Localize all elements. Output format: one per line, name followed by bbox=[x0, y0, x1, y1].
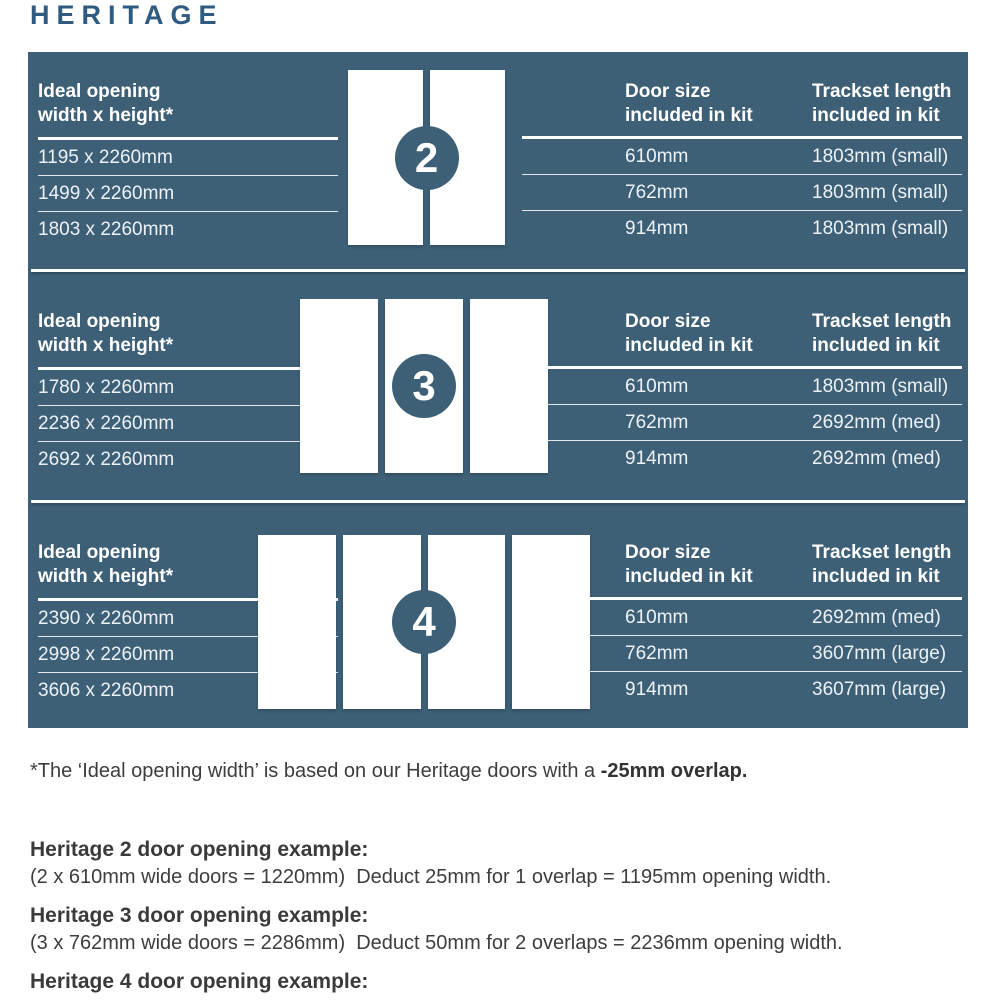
opening-size-value: 2998 x 2260mm bbox=[38, 644, 174, 666]
opening-size-value: 3606 x 2260mm bbox=[38, 680, 174, 702]
trackset-header-line1: Trackset length bbox=[812, 541, 951, 565]
table-row: 762mm 1803mm (small) bbox=[522, 175, 962, 211]
opening-size-value: 2692 x 2260mm bbox=[38, 449, 174, 471]
trackset-value: 3607mm (large) bbox=[812, 643, 946, 665]
door-panel bbox=[300, 299, 378, 473]
trackset-header: Trackset length included in kit bbox=[812, 310, 951, 358]
door-count-badge: 4 bbox=[392, 590, 456, 654]
opening-header-line2: width x height* bbox=[38, 334, 338, 358]
table-row: 610mm 1803mm (small) bbox=[522, 139, 962, 175]
table-row: 2692 x 2260mm bbox=[38, 442, 338, 477]
table-row: 610mm 1803mm (small) bbox=[522, 369, 962, 405]
kit-table-header: Door size included in kit Trackset lengt… bbox=[522, 541, 962, 589]
door-size-header-line1: Door size bbox=[625, 541, 753, 565]
trackset-header: Trackset length included in kit bbox=[812, 80, 951, 128]
door-size-value: 610mm bbox=[625, 607, 688, 629]
example-body-3-door: (3 x 762mm wide doors = 2286mm) Deduct 5… bbox=[30, 932, 843, 955]
footnote-text: *The ‘Ideal opening width’ is based on o… bbox=[30, 760, 601, 782]
heritage-2-door-section: Ideal opening width x height* 1195 x 226… bbox=[28, 52, 968, 269]
table-row: 2236 x 2260mm bbox=[38, 406, 338, 442]
door-size-value: 914mm bbox=[625, 218, 688, 240]
heritage-4-door-section: Ideal opening width x height* 2390 x 226… bbox=[28, 503, 968, 730]
table-row: 762mm 2692mm (med) bbox=[522, 405, 962, 441]
table-row: 610mm 2692mm (med) bbox=[522, 600, 962, 636]
trackset-value: 1803mm (small) bbox=[812, 376, 948, 398]
door-size-value: 762mm bbox=[625, 412, 688, 434]
kit-table-header: Door size included in kit Trackset lengt… bbox=[522, 80, 962, 128]
door-diagram-2: 2 bbox=[348, 70, 505, 245]
example-body-2-door: (2 x 610mm wide doors = 1220mm) Deduct 2… bbox=[30, 866, 843, 889]
example-title-3-door: Heritage 3 door opening example: bbox=[30, 904, 843, 928]
door-panel bbox=[258, 535, 336, 709]
example-title-4-door: Heritage 4 door opening example: bbox=[30, 970, 843, 994]
door-count-badge: 2 bbox=[395, 126, 459, 190]
table-row: 1780 x 2260mm bbox=[38, 370, 338, 406]
opening-header-line2: width x height* bbox=[38, 104, 338, 128]
door-size-value: 914mm bbox=[625, 679, 688, 701]
trackset-header: Trackset length included in kit bbox=[812, 541, 951, 589]
opening-size-value: 1499 x 2260mm bbox=[38, 183, 174, 205]
trackset-value: 1803mm (small) bbox=[812, 218, 948, 240]
door-size-value: 914mm bbox=[625, 448, 688, 470]
opening-size-value: 1195 x 2260mm bbox=[38, 147, 173, 169]
opening-header-line1: Ideal opening bbox=[38, 80, 338, 104]
page-title: HERITAGE bbox=[30, 0, 224, 31]
trackset-header-line2: included in kit bbox=[812, 104, 951, 128]
trackset-header-line2: included in kit bbox=[812, 565, 951, 589]
trackset-header-line1: Trackset length bbox=[812, 310, 951, 334]
table-row: 914mm 1803mm (small) bbox=[522, 211, 962, 246]
table-row: 1803 x 2260mm bbox=[38, 212, 338, 247]
table-row: 914mm 2692mm (med) bbox=[522, 441, 962, 476]
door-size-header-line1: Door size bbox=[625, 80, 753, 104]
kit-table: Door size included in kit Trackset lengt… bbox=[522, 310, 962, 476]
opening-size-value: 1803 x 2260mm bbox=[38, 219, 174, 241]
opening-size-table: Ideal opening width x height* 1195 x 226… bbox=[38, 80, 338, 247]
opening-size-table: Ideal opening width x height* 1780 x 226… bbox=[38, 310, 338, 477]
trackset-header-line2: included in kit bbox=[812, 334, 951, 358]
kit-table-header: Door size included in kit Trackset lengt… bbox=[522, 310, 962, 358]
door-size-header-line2: included in kit bbox=[625, 565, 753, 589]
trackset-value: 2692mm (med) bbox=[812, 607, 941, 629]
heritage-3-door-section: Ideal opening width x height* 1780 x 226… bbox=[28, 272, 968, 500]
trackset-value: 3607mm (large) bbox=[812, 679, 946, 701]
opening-size-value: 1780 x 2260mm bbox=[38, 377, 174, 399]
trackset-value: 2692mm (med) bbox=[812, 412, 941, 434]
door-size-value: 762mm bbox=[625, 643, 688, 665]
door-size-header: Door size included in kit bbox=[625, 310, 753, 358]
door-count-number: 3 bbox=[412, 362, 435, 410]
example-title-2-door: Heritage 2 door opening example: bbox=[30, 838, 843, 862]
trackset-header-line1: Trackset length bbox=[812, 80, 951, 104]
opening-size-value: 2236 x 2260mm bbox=[38, 413, 174, 435]
table-row: 1499 x 2260mm bbox=[38, 176, 338, 212]
opening-size-header: Ideal opening width x height* bbox=[38, 310, 338, 358]
door-size-header: Door size included in kit bbox=[625, 541, 753, 589]
door-count-number: 4 bbox=[412, 598, 435, 646]
trackset-value: 2692mm (med) bbox=[812, 448, 941, 470]
heritage-spec-sheet: HERITAGE Ideal opening width x height* 1… bbox=[0, 0, 1000, 1000]
opening-header-line1: Ideal opening bbox=[38, 310, 338, 334]
table-row: 1195 x 2260mm bbox=[38, 140, 338, 176]
door-size-header-line2: included in kit bbox=[625, 104, 753, 128]
spec-panel: Ideal opening width x height* 1195 x 226… bbox=[28, 52, 968, 728]
opening-examples: Heritage 2 door opening example: (2 x 61… bbox=[30, 838, 843, 1000]
kit-table: Door size included in kit Trackset lengt… bbox=[522, 541, 962, 707]
door-size-header-line2: included in kit bbox=[625, 334, 753, 358]
door-size-value: 610mm bbox=[625, 146, 688, 168]
door-count-badge: 3 bbox=[392, 354, 456, 418]
door-size-value: 762mm bbox=[625, 182, 688, 204]
table-row: 762mm 3607mm (large) bbox=[522, 636, 962, 672]
door-count-number: 2 bbox=[415, 134, 438, 182]
door-size-header: Door size included in kit bbox=[625, 80, 753, 128]
opening-size-header: Ideal opening width x height* bbox=[38, 80, 338, 128]
door-size-header-line1: Door size bbox=[625, 310, 753, 334]
door-diagram-3: 3 bbox=[300, 299, 548, 473]
door-size-value: 610mm bbox=[625, 376, 688, 398]
trackset-value: 1803mm (small) bbox=[812, 146, 948, 168]
opening-size-value: 2390 x 2260mm bbox=[38, 608, 174, 630]
kit-table: Door size included in kit Trackset lengt… bbox=[522, 80, 962, 246]
footnote: *The ‘Ideal opening width’ is based on o… bbox=[30, 760, 747, 783]
trackset-value: 1803mm (small) bbox=[812, 182, 948, 204]
footnote-bold: -25mm overlap. bbox=[601, 760, 748, 782]
table-row: 914mm 3607mm (large) bbox=[522, 672, 962, 707]
